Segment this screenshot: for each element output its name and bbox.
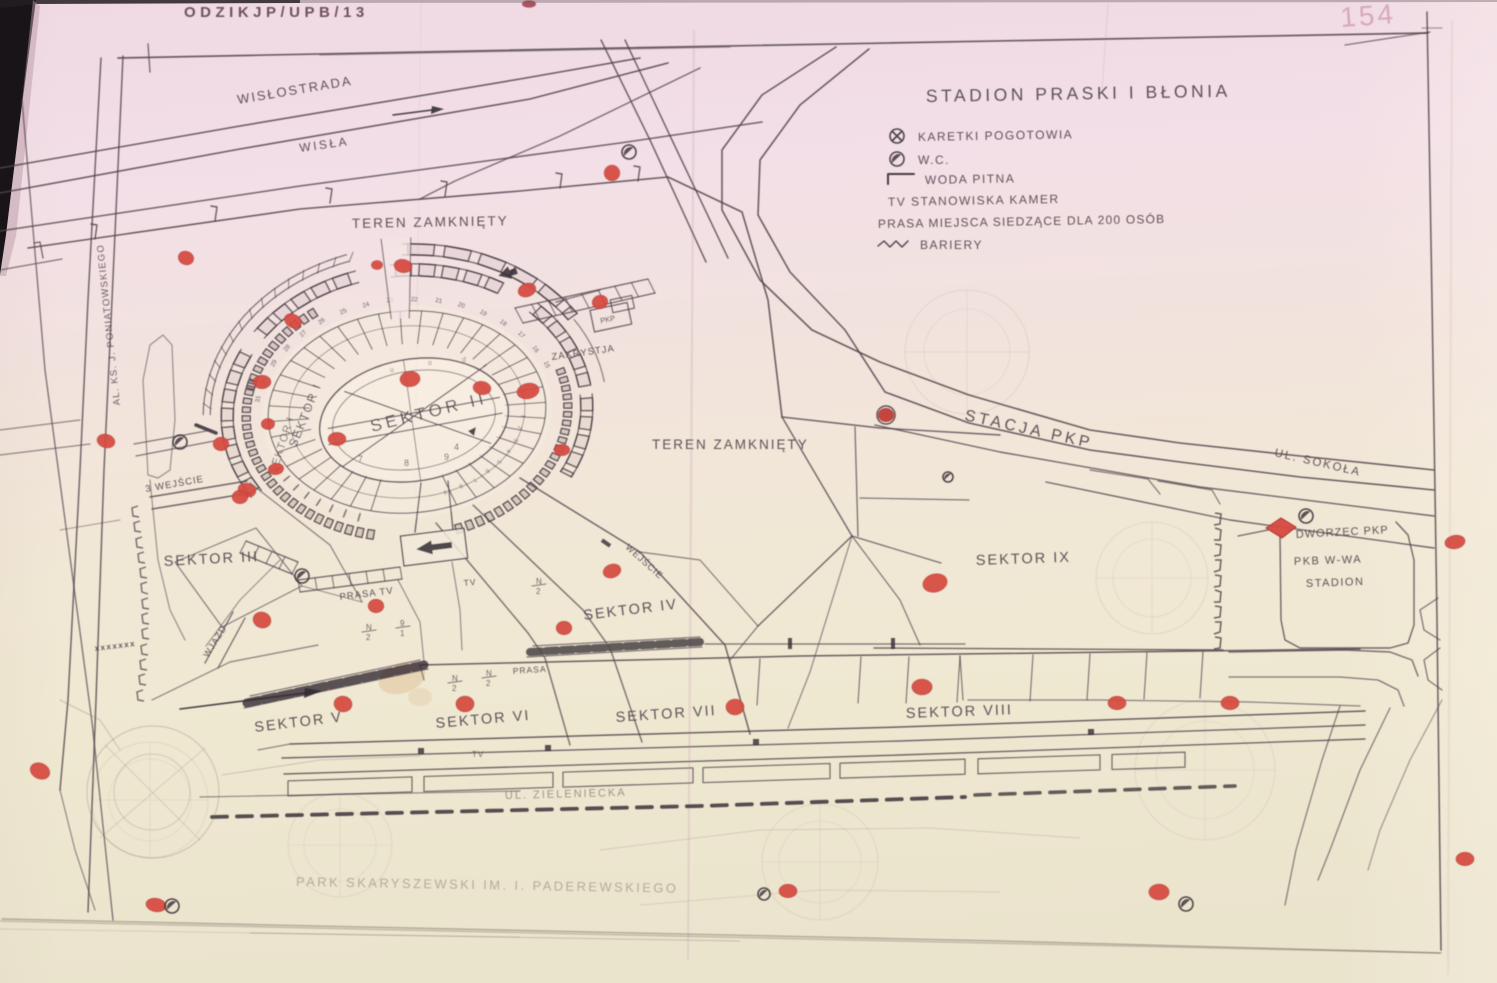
svg-text:4: 4 [454,442,461,452]
svg-text:2: 2 [452,684,457,693]
svg-text:PKB W-WA: PKB W-WA [1294,554,1363,568]
svg-text:154: 154 [1339,0,1397,33]
svg-text:KARETKI POGOTOWIA: KARETKI POGOTOWIA [918,127,1074,144]
svg-text:SEKTOR IX: SEKTOR IX [976,550,1072,569]
svg-text:BARIERY: BARIERY [920,238,983,252]
svg-text:ODZIKJP/UPB/13: ODZIKJP/UPB/13 [184,4,369,21]
svg-text:STADION: STADION [1306,576,1365,590]
svg-text:TEREN ZAMKNIĘTY: TEREN ZAMKNIĘTY [652,437,809,452]
svg-text:7: 7 [358,454,365,464]
svg-text:8: 8 [404,458,411,468]
svg-text:2: 2 [486,679,491,688]
svg-text:TV: TV [472,750,484,759]
svg-text:d: d [462,357,467,364]
svg-text:1: 1 [400,629,405,638]
svg-text:2: 2 [536,587,541,596]
svg-text:W.C.: W.C. [918,153,950,167]
svg-text:o: o [428,360,433,367]
svg-text:TEREN ZAMKNIĘTY: TEREN ZAMKNIĘTY [352,213,509,231]
svg-text:22: 22 [411,296,419,303]
svg-text:TV: TV [463,577,477,588]
svg-text:u: u [390,367,395,374]
svg-text:TV STANOWISKA KAMER: TV STANOWISKA KAMER [888,192,1060,209]
svg-text:WODA PITNA: WODA PITNA [925,171,1016,187]
svg-text:9: 9 [444,452,451,462]
svg-text:2: 2 [366,633,371,642]
